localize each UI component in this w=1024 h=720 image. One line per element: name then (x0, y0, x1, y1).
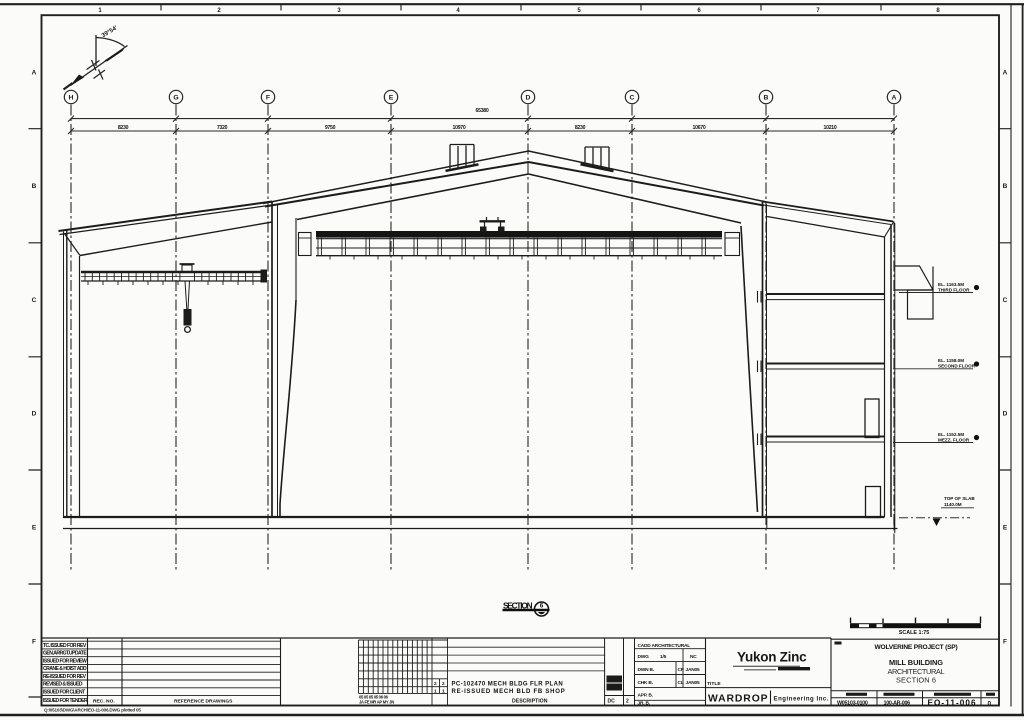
svg-text:DWN B.: DWN B. (638, 667, 654, 673)
svg-text:5: 5 (577, 8, 581, 14)
svg-text:F: F (1003, 639, 1007, 646)
svg-text:2: 2 (434, 681, 437, 687)
svg-text:10210: 10210 (824, 125, 837, 131)
svg-text:A: A (32, 70, 37, 77)
svg-text:EO-11-006: EO-11-006 (928, 699, 976, 708)
svg-text:ARCHITECTURAL: ARCHITECTURAL (888, 667, 945, 676)
svg-text:Q:\05103\DWG\ARCH\EO-11-006.DW: Q:\05103\DWG\ARCH\EO-11-006.DWG plotted … (44, 708, 141, 713)
svg-text:E: E (32, 525, 37, 532)
svg-text:10970: 10970 (453, 125, 466, 131)
svg-text:EL. 1152.5M: EL. 1152.5M (938, 432, 964, 437)
svg-text:JAN05: JAN05 (686, 680, 700, 686)
svg-text:10670: 10670 (693, 125, 706, 131)
svg-text:GEN.ARRGT.UPDATE: GEN.ARRGT.UPDATE (43, 651, 87, 657)
svg-text:Yukon Zinc: Yukon Zinc (737, 650, 807, 665)
svg-text:6: 6 (697, 8, 701, 14)
svg-text:JR. B.: JR. B. (638, 701, 650, 707)
svg-text:B: B (764, 95, 769, 102)
svg-text:G: G (173, 95, 178, 102)
svg-text:C: C (32, 297, 37, 304)
svg-text:TITLE: TITLE (707, 681, 721, 687)
svg-text:RE-ISSUED FOR REV: RE-ISSUED FOR REV (43, 674, 87, 680)
svg-text:Engineering Inc.: Engineering Inc. (774, 697, 829, 703)
svg-text:C: C (630, 95, 635, 102)
svg-text:1: 1 (442, 689, 445, 695)
svg-text:ISSUED FOR CLIENT: ISSUED FOR CLIENT (43, 690, 86, 696)
svg-text:CP: CP (678, 667, 685, 673)
svg-text:1: 1 (98, 8, 102, 14)
svg-text:WARDROP: WARDROP (708, 694, 768, 705)
svg-text:D: D (32, 411, 37, 418)
svg-text:1140.0M: 1140.0M (944, 502, 962, 507)
svg-text:F: F (266, 95, 270, 102)
svg-text:39°54': 39°54' (101, 25, 119, 39)
svg-text:2: 2 (217, 8, 221, 14)
svg-text:EL. 1158.0M: EL. 1158.0M (938, 358, 964, 363)
svg-text:CRANE & HOIST ADD: CRANE & HOIST ADD (43, 666, 87, 672)
svg-text:APP. B.: APP. B. (638, 693, 653, 699)
svg-text:B: B (32, 183, 37, 190)
svg-text:SECOND FLOOR: SECOND FLOOR (938, 364, 976, 369)
svg-text:65380: 65380 (476, 108, 489, 114)
svg-text:8: 8 (936, 8, 940, 14)
svg-text:B: B (1003, 183, 1008, 190)
svg-text:MEZZ. FLOOR: MEZZ. FLOOR (938, 438, 970, 443)
svg-text:6: 6 (540, 603, 544, 610)
svg-text:SCALE 1:75: SCALE 1:75 (899, 630, 930, 636)
svg-text:D: D (1003, 411, 1008, 418)
svg-text:MILL BUILDING: MILL BUILDING (889, 658, 943, 667)
svg-text:SECTION 6: SECTION 6 (896, 676, 936, 685)
svg-text:DC: DC (608, 699, 616, 705)
svg-text:NC: NC (690, 654, 697, 660)
svg-text:ISSUED FOR TENDER: ISSUED FOR TENDER (43, 698, 88, 704)
svg-text:8230: 8230 (118, 125, 129, 131)
svg-text:7: 7 (816, 8, 820, 14)
svg-text:F: F (32, 639, 36, 646)
svg-text:2: 2 (442, 681, 445, 687)
svg-text:0: 0 (988, 700, 992, 707)
svg-text:RE-ISSUED MECH BLD FB SHOP: RE-ISSUED MECH BLD FB SHOP (452, 689, 565, 695)
svg-text:A: A (892, 95, 897, 102)
svg-text:H: H (69, 95, 74, 102)
svg-text:2: 2 (626, 699, 629, 705)
svg-text:E: E (1003, 525, 1008, 532)
svg-text:REC. NO.: REC. NO. (93, 698, 115, 704)
svg-text:REFERENCE DRAWINGS: REFERENCE DRAWINGS (174, 698, 233, 704)
svg-text:DWG: DWG (638, 654, 650, 660)
svg-text:C: C (1003, 297, 1008, 304)
svg-text:100-AR-006: 100-AR-006 (884, 701, 911, 707)
svg-text:3: 3 (337, 8, 341, 14)
svg-text:REVISED & ISSUED: REVISED & ISSUED (43, 682, 83, 688)
svg-text:JAN05: JAN05 (686, 667, 700, 673)
svg-text:DESCRIPTION: DESCRIPTION (512, 698, 548, 704)
svg-text:CADD ARCHITECTURAL: CADD ARCHITECTURAL (638, 643, 691, 649)
svg-text:THIRD FLOOR: THIRD FLOOR (938, 288, 970, 293)
svg-text:E: E (389, 95, 394, 102)
svg-text:A: A (1003, 70, 1008, 77)
svg-text:ISSUED FOR REVIEW: ISSUED FOR REVIEW (43, 658, 87, 664)
svg-text:WOLVERINE PROJECT (SP): WOLVERINE PROJECT (SP) (875, 644, 958, 651)
svg-text:1: 1 (434, 689, 437, 695)
svg-text:TOP OF SLAB: TOP OF SLAB (944, 496, 975, 501)
svg-text:PC-102470 MECH BLDG FLR PLAN: PC-102470 MECH BLDG FLR PLAN (452, 681, 563, 687)
svg-text:8230: 8230 (575, 125, 586, 131)
svg-text:TC. ISSUED FOR REV: TC. ISSUED FOR REV (43, 643, 87, 649)
svg-text:CL: CL (678, 680, 684, 686)
svg-text:EL. 1163.5M: EL. 1163.5M (938, 282, 964, 287)
svg-text:JA FE MR AP MY JN: JA FE MR AP MY JN (359, 700, 394, 705)
svg-text:1/5: 1/5 (660, 654, 667, 660)
svg-text:9750: 9750 (325, 125, 336, 131)
svg-text:4: 4 (456, 8, 460, 14)
svg-text:W05103-0100: W05103-0100 (837, 701, 868, 707)
svg-text:7320: 7320 (217, 125, 228, 131)
svg-text:CHK B.: CHK B. (638, 680, 653, 686)
svg-text:D: D (526, 95, 531, 102)
